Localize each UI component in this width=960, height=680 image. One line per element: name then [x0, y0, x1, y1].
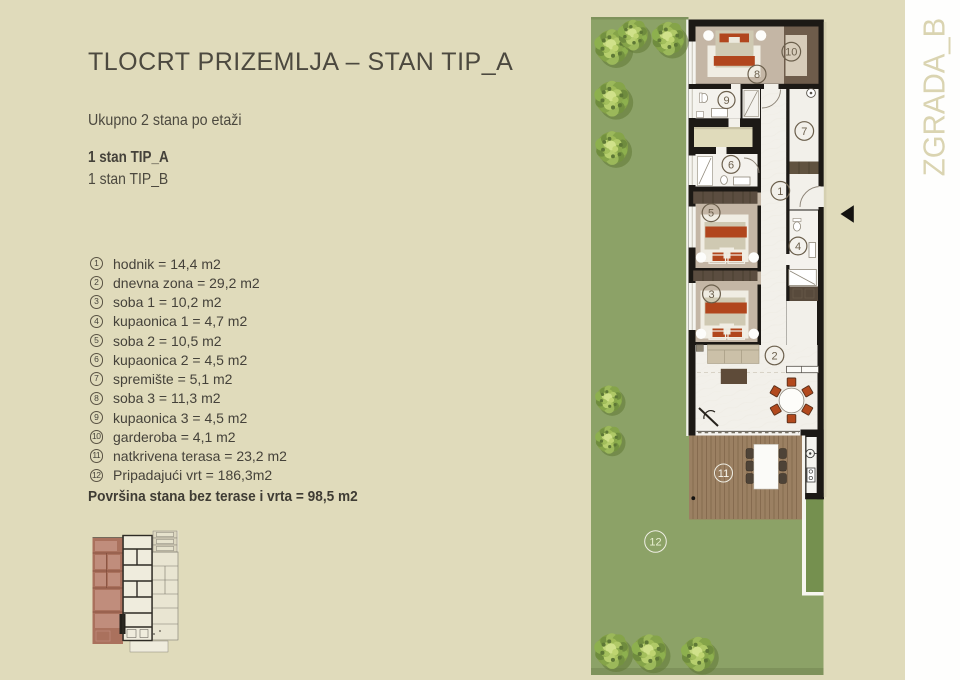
svg-text:8: 8 — [754, 69, 760, 81]
svg-text:4: 4 — [795, 241, 801, 253]
svg-text:2: 2 — [771, 351, 777, 363]
svg-text:10: 10 — [785, 47, 797, 59]
svg-text:11: 11 — [718, 468, 729, 480]
svg-text:5: 5 — [708, 208, 714, 220]
svg-text:9: 9 — [723, 95, 729, 107]
svg-text:1: 1 — [777, 186, 783, 198]
svg-text:12: 12 — [649, 537, 661, 549]
svg-text:3: 3 — [708, 289, 714, 301]
svg-text:6: 6 — [728, 159, 734, 171]
svg-text:7: 7 — [801, 126, 807, 138]
